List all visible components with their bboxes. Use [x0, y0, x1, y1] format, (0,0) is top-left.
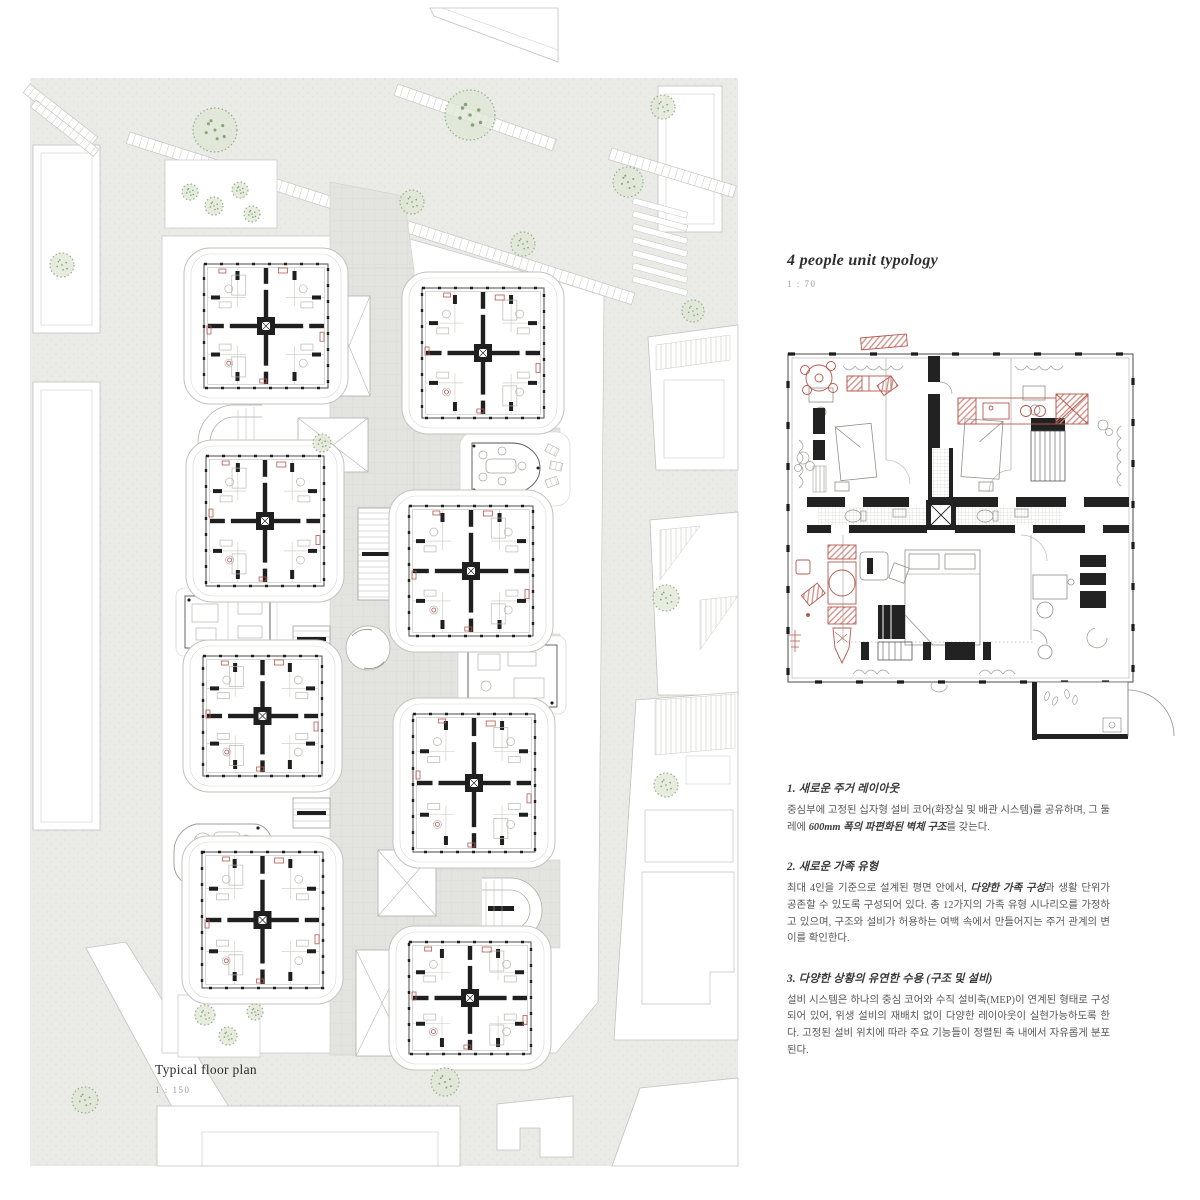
floor-plan-scale: 1 : 150: [155, 1085, 257, 1095]
section-new-layout: 1. 새로운 주거 레이아웃 중심부에 고정된 십자형 설비 코어(화장실 및 …: [787, 780, 1110, 836]
section-body: 최대 4인을 기준으로 설계된 평면 안에서, 다양한 가족 구성과 생활 단위…: [787, 881, 1110, 948]
floor-plan-caption: Typical floor plan 1 : 150: [155, 1062, 257, 1095]
unit-plan-scale: 1 : 70: [787, 279, 1127, 289]
section-body: 중심부에 고정된 십자형 설비 코어(화장실 및 배관 시스템)를 공유하며, …: [787, 803, 1110, 836]
section-flexible-mep: 3. 다양한 상황의 유연한 수용 (구조 및 설비) 설비 시스템은 하나의 …: [787, 970, 1110, 1060]
description-sections: 1. 새로운 주거 레이아웃 중심부에 고정된 십자형 설비 코어(화장실 및 …: [787, 780, 1110, 1081]
section-family-types: 2. 새로운 가족 유형 최대 4인을 기준으로 설계된 평면 안에서, 다양한…: [787, 858, 1110, 948]
section-body: 설비 시스템은 하나의 중심 코어와 수직 설비축(MEP)이 연계된 형태로 …: [787, 993, 1110, 1060]
unit-plan-drawing: [783, 330, 1178, 748]
section-heading: 3. 다양한 상황의 유연한 수용 (구조 및 설비): [787, 970, 1110, 986]
section-heading: 2. 새로운 가족 유형: [787, 858, 1110, 874]
floor-plan-title: Typical floor plan: [155, 1062, 257, 1078]
right-panel-header: 4 people unit typology 1 : 70: [787, 252, 1127, 289]
presentation-board: 4 people unit typology 1 : 70 1. 새로운 주거 …: [0, 0, 1200, 1200]
section-heading: 1. 새로운 주거 레이아웃: [787, 780, 1110, 796]
entrance-vestibule: [1032, 682, 1174, 740]
site-plan-drawing: [0, 0, 740, 1200]
page-title: 4 people unit typology: [787, 252, 1127, 270]
